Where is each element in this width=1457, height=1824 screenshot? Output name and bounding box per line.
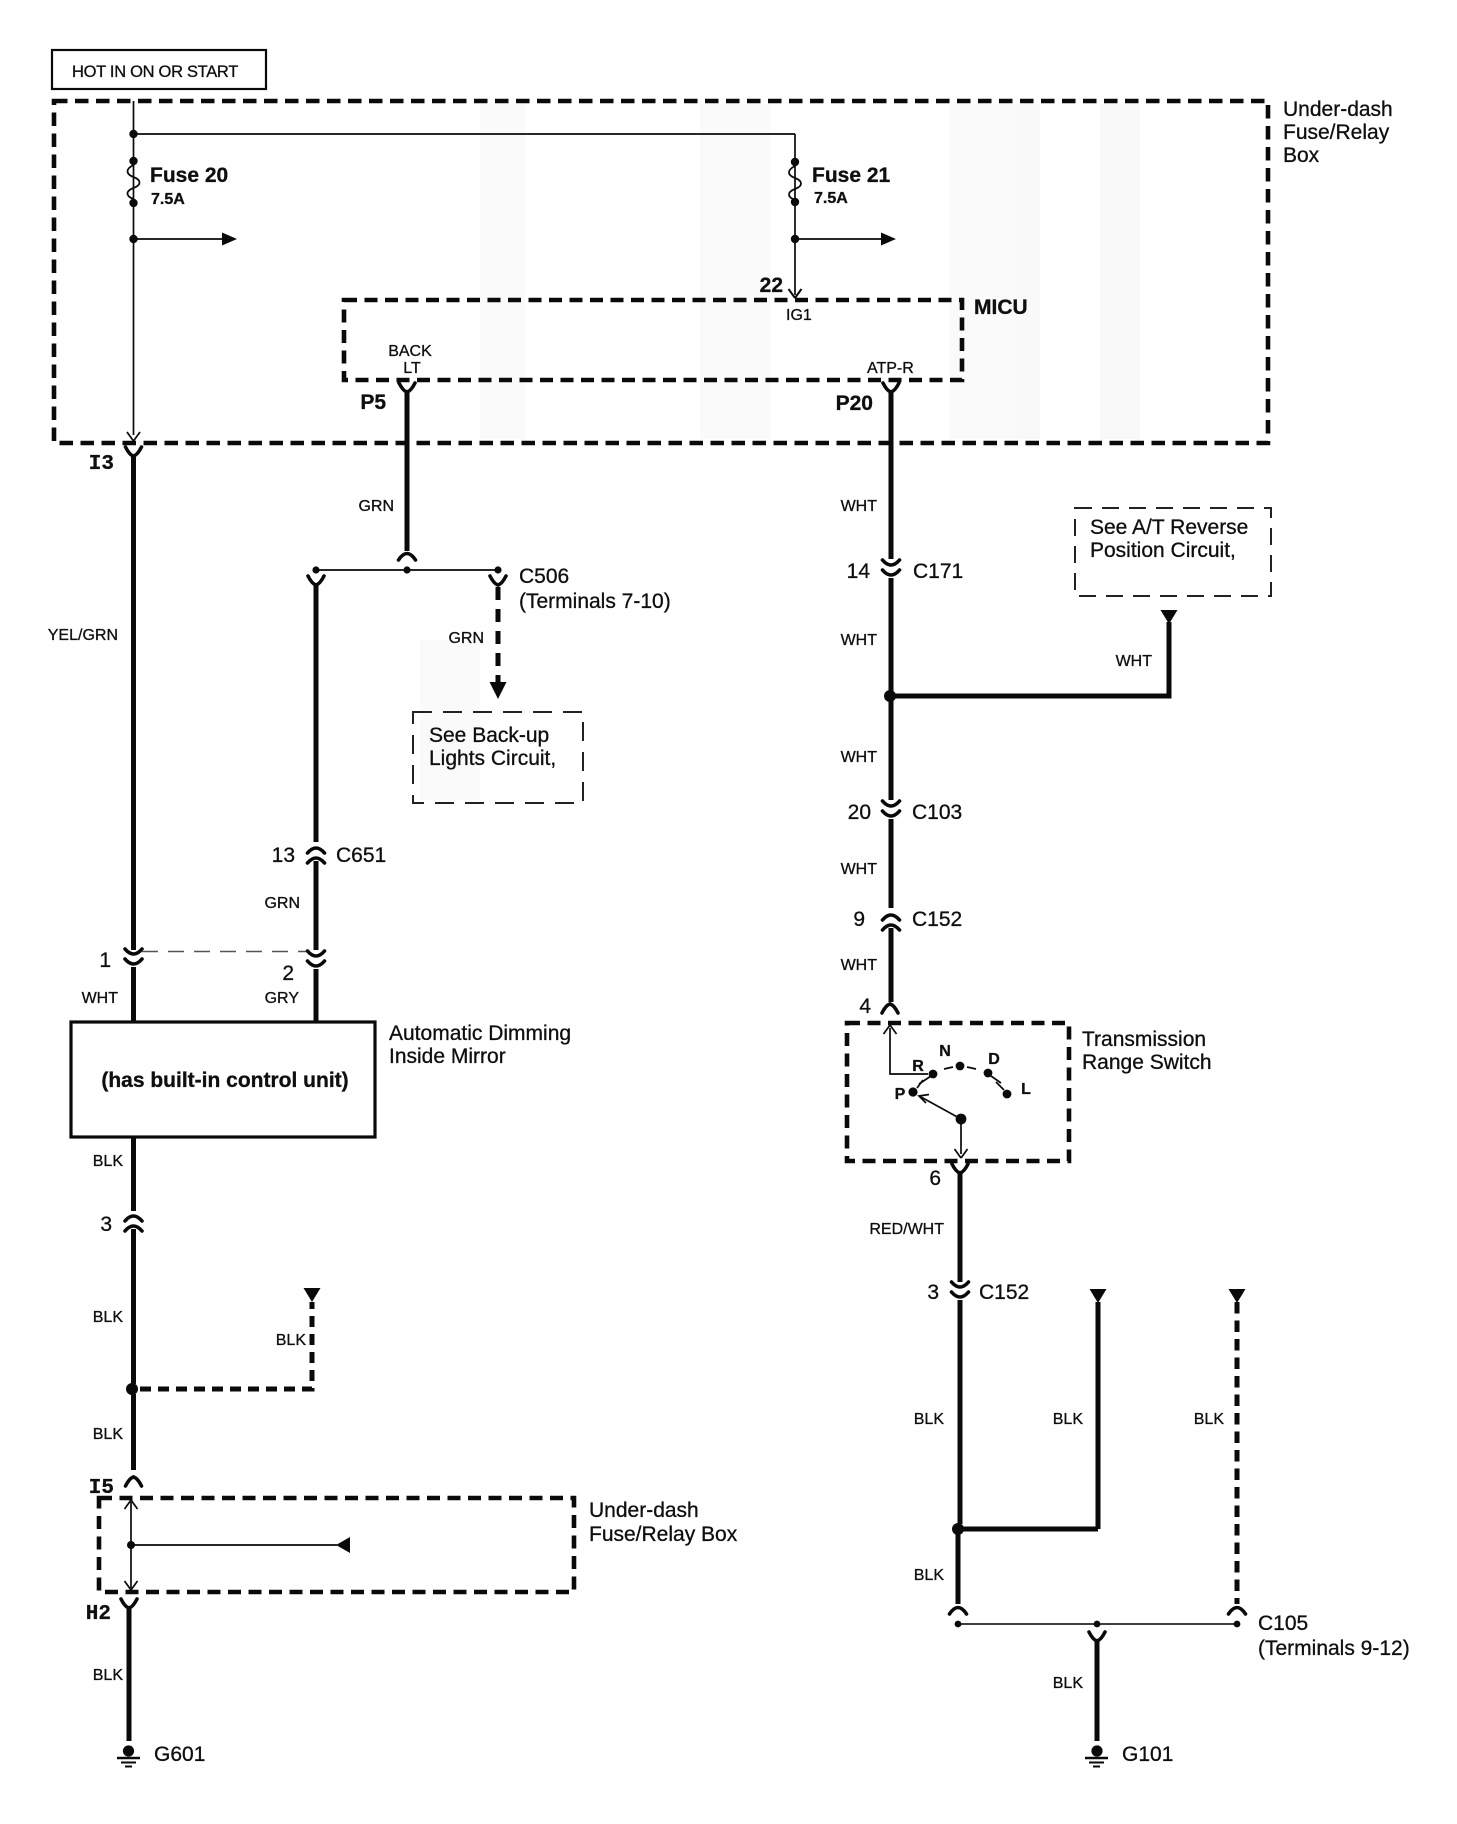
svg-text:14: 14 [847,560,871,583]
svg-text:BLK: BLK [1053,1411,1084,1428]
svg-text:20: 20 [848,801,871,824]
svg-text:P20: P20 [836,392,873,415]
svg-text:GRN: GRN [264,895,300,912]
svg-text:13: 13 [272,844,295,867]
svg-text:BLK: BLK [1053,1675,1084,1692]
svg-text:9: 9 [853,908,865,931]
svg-text:P: P [895,1086,906,1103]
svg-text:WHT: WHT [1116,653,1153,670]
svg-text:7.5A: 7.5A [151,191,185,208]
svg-text:C506: C506 [519,565,569,588]
svg-text:GRN: GRN [448,630,484,647]
svg-text:BLK: BLK [914,1411,945,1428]
svg-text:4: 4 [859,995,871,1018]
svg-text:HOT IN ON OR START: HOT IN ON OR START [72,63,238,81]
svg-text:YEL/GRN: YEL/GRN [48,627,118,644]
svg-text:See Back-up: See Back-up [429,724,549,747]
svg-text:C152: C152 [912,908,962,931]
svg-text:WHT: WHT [841,957,878,974]
svg-text:Fuse/Relay: Fuse/Relay [1283,121,1390,144]
svg-text:BLK: BLK [276,1332,307,1349]
svg-text:I3: I3 [89,453,114,476]
svg-text:BLK: BLK [93,1309,124,1326]
svg-text:(Terminals 9-12): (Terminals 9-12) [1258,1637,1410,1660]
svg-text:WHT: WHT [841,861,878,878]
svg-text:BLK: BLK [93,1153,124,1170]
svg-text:Fuse 20: Fuse 20 [150,164,228,187]
svg-text:C152: C152 [979,1281,1029,1304]
svg-text:Fuse/Relay Box: Fuse/Relay Box [589,1523,738,1546]
svg-text:BLK: BLK [914,1567,945,1584]
svg-text:N: N [939,1043,951,1060]
svg-text:R: R [912,1058,924,1075]
svg-text:7.5A: 7.5A [814,190,848,207]
svg-text:L: L [1021,1081,1031,1098]
svg-text:(Terminals 7-10): (Terminals 7-10) [519,590,671,613]
svg-text:Inside Mirror: Inside Mirror [389,1045,506,1068]
svg-text:BLK: BLK [1194,1411,1225,1428]
svg-text:RED/WHT: RED/WHT [869,1221,944,1238]
svg-text:Under-dash: Under-dash [589,1499,699,1522]
svg-text:6: 6 [929,1167,941,1190]
svg-text:H2: H2 [86,1603,111,1626]
svg-text:GRN: GRN [358,498,394,515]
svg-text:Lights Circuit,: Lights Circuit, [429,747,556,770]
svg-text:22: 22 [760,274,783,297]
svg-text:C651: C651 [336,844,386,867]
svg-text:WHT: WHT [841,632,878,649]
svg-text:LT: LT [403,360,421,377]
svg-text:ATP-R: ATP-R [867,360,914,377]
svg-text:IG1: IG1 [786,307,812,324]
svg-text:P5: P5 [360,391,386,414]
svg-text:2: 2 [282,962,294,985]
svg-text:WHT: WHT [82,990,119,1007]
svg-text:WHT: WHT [841,498,878,515]
svg-text:Position Circuit,: Position Circuit, [1090,539,1236,562]
svg-text:See A/T Reverse: See A/T Reverse [1090,516,1248,539]
svg-text:Automatic Dimming: Automatic Dimming [389,1022,571,1045]
svg-text:C171: C171 [913,560,963,583]
svg-text:Range Switch: Range Switch [1082,1051,1212,1074]
svg-text:BACK: BACK [388,343,432,360]
svg-text:Fuse 21: Fuse 21 [812,164,891,187]
svg-text:WHT: WHT [841,749,878,766]
svg-text:Transmission: Transmission [1082,1028,1206,1051]
svg-text:Box: Box [1283,144,1320,167]
svg-text:(has built-in control unit): (has built-in control unit) [101,1069,348,1092]
svg-text:C103: C103 [912,801,962,824]
svg-text:GRY: GRY [265,990,300,1007]
svg-text:BLK: BLK [93,1667,124,1684]
svg-text:3: 3 [927,1281,939,1304]
svg-text:3: 3 [100,1213,112,1236]
svg-text:1: 1 [99,949,111,972]
svg-text:G601: G601 [154,1743,205,1766]
svg-text:BLK: BLK [93,1426,124,1443]
svg-text:Under-dash: Under-dash [1283,98,1393,121]
svg-text:MICU: MICU [974,296,1028,319]
svg-text:C105: C105 [1258,1612,1308,1635]
svg-text:D: D [988,1051,1000,1068]
svg-text:G101: G101 [1122,1743,1173,1766]
